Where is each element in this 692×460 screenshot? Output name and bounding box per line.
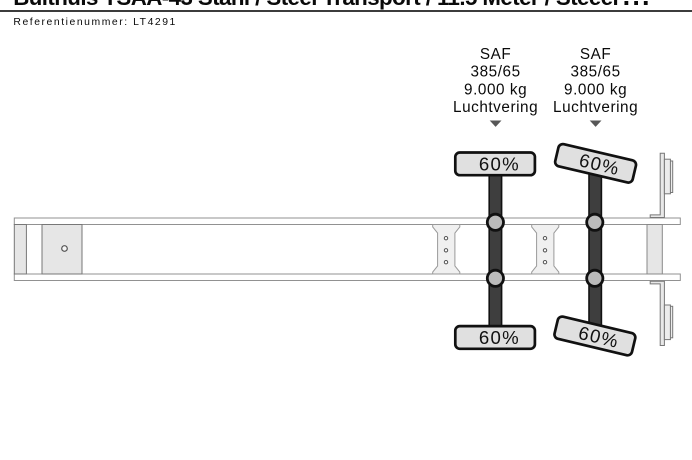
svg-text:SAF: SAF [580,46,611,63]
svg-text:385/65: 385/65 [471,64,521,81]
svg-text:385/65: 385/65 [571,64,621,81]
svg-text:60%: 60% [576,322,621,352]
svg-text:9.000 kg: 9.000 kg [564,81,627,98]
svg-text:60%: 60% [577,149,622,179]
svg-text:9.000 kg: 9.000 kg [464,81,527,98]
svg-text:SAF: SAF [480,46,511,63]
svg-text:60%: 60% [479,153,520,174]
svg-text:Luchtvering: Luchtvering [553,99,638,116]
svg-text:Luchtvering: Luchtvering [453,99,538,116]
svg-text:60%: 60% [479,327,520,348]
